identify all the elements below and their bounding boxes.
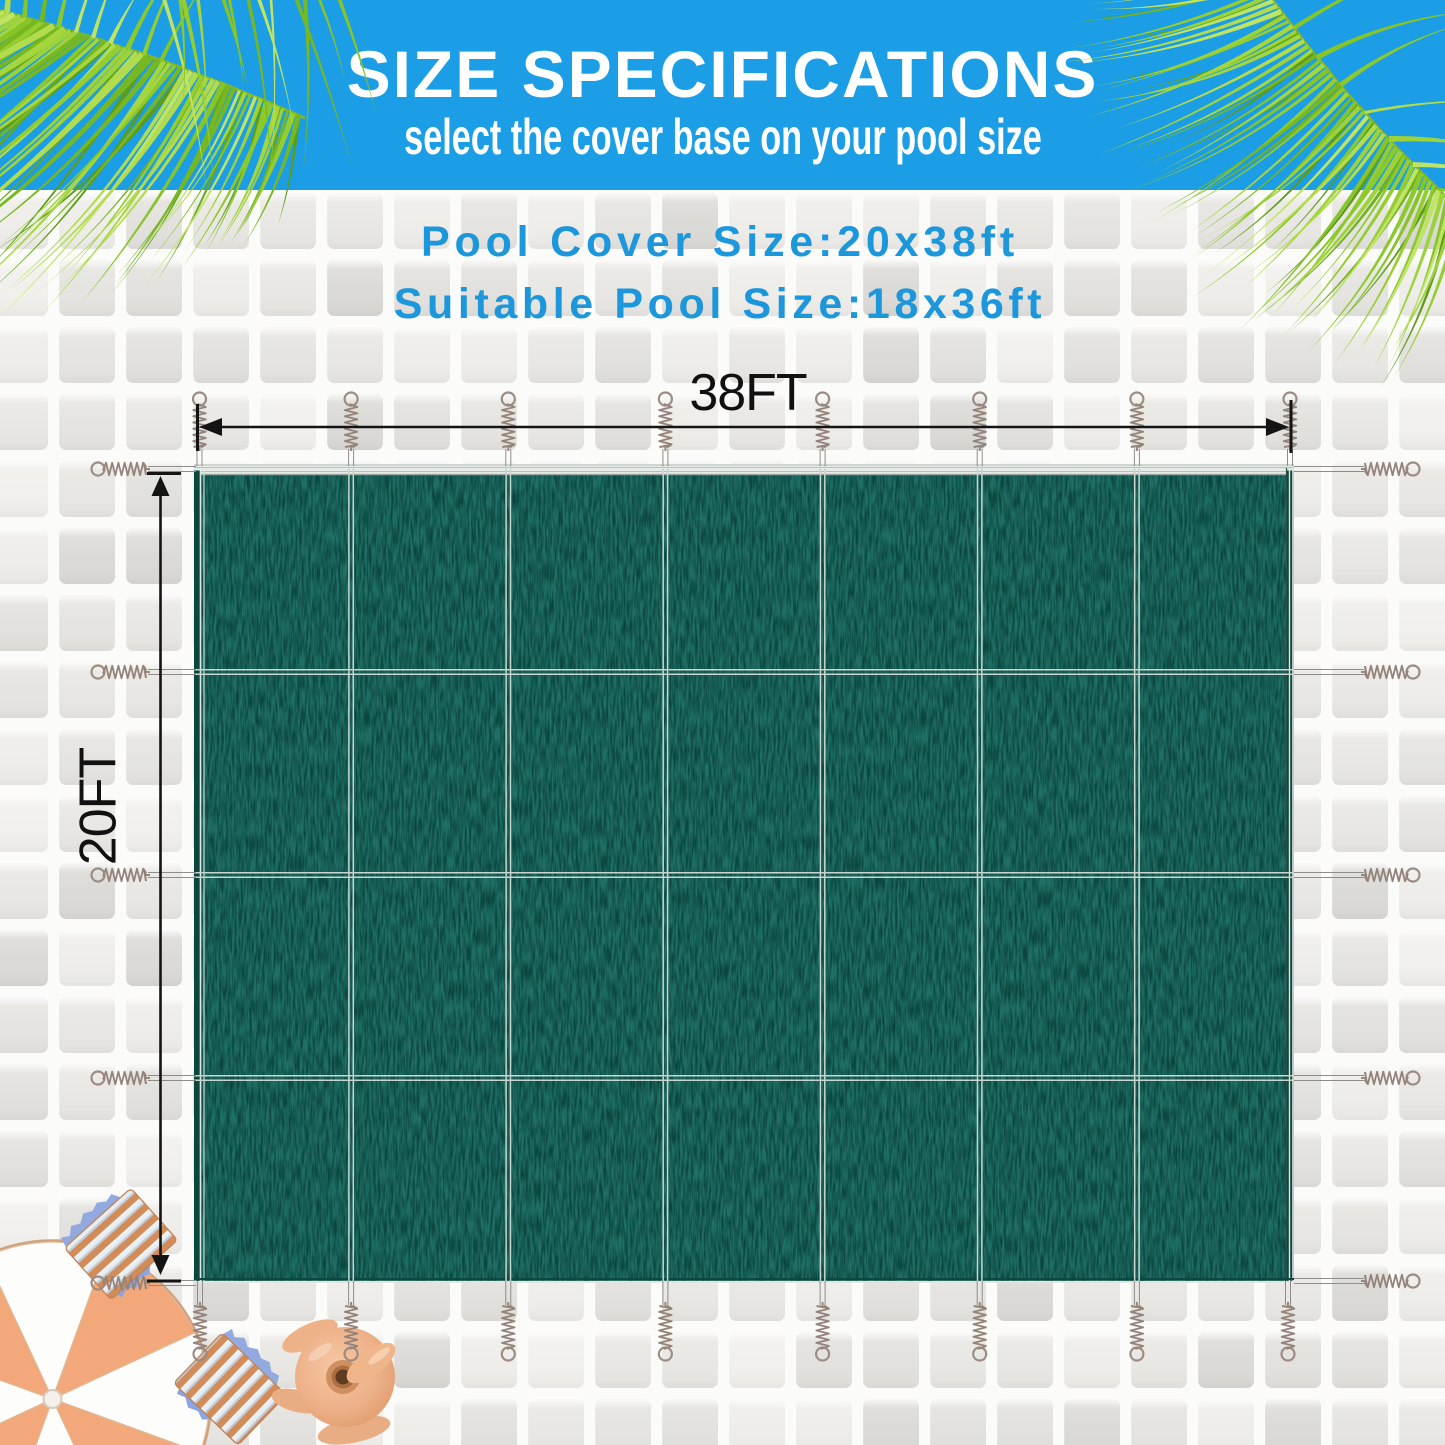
- svg-text:38FT: 38FT: [689, 364, 807, 422]
- svg-text:20FT: 20FT: [70, 748, 128, 866]
